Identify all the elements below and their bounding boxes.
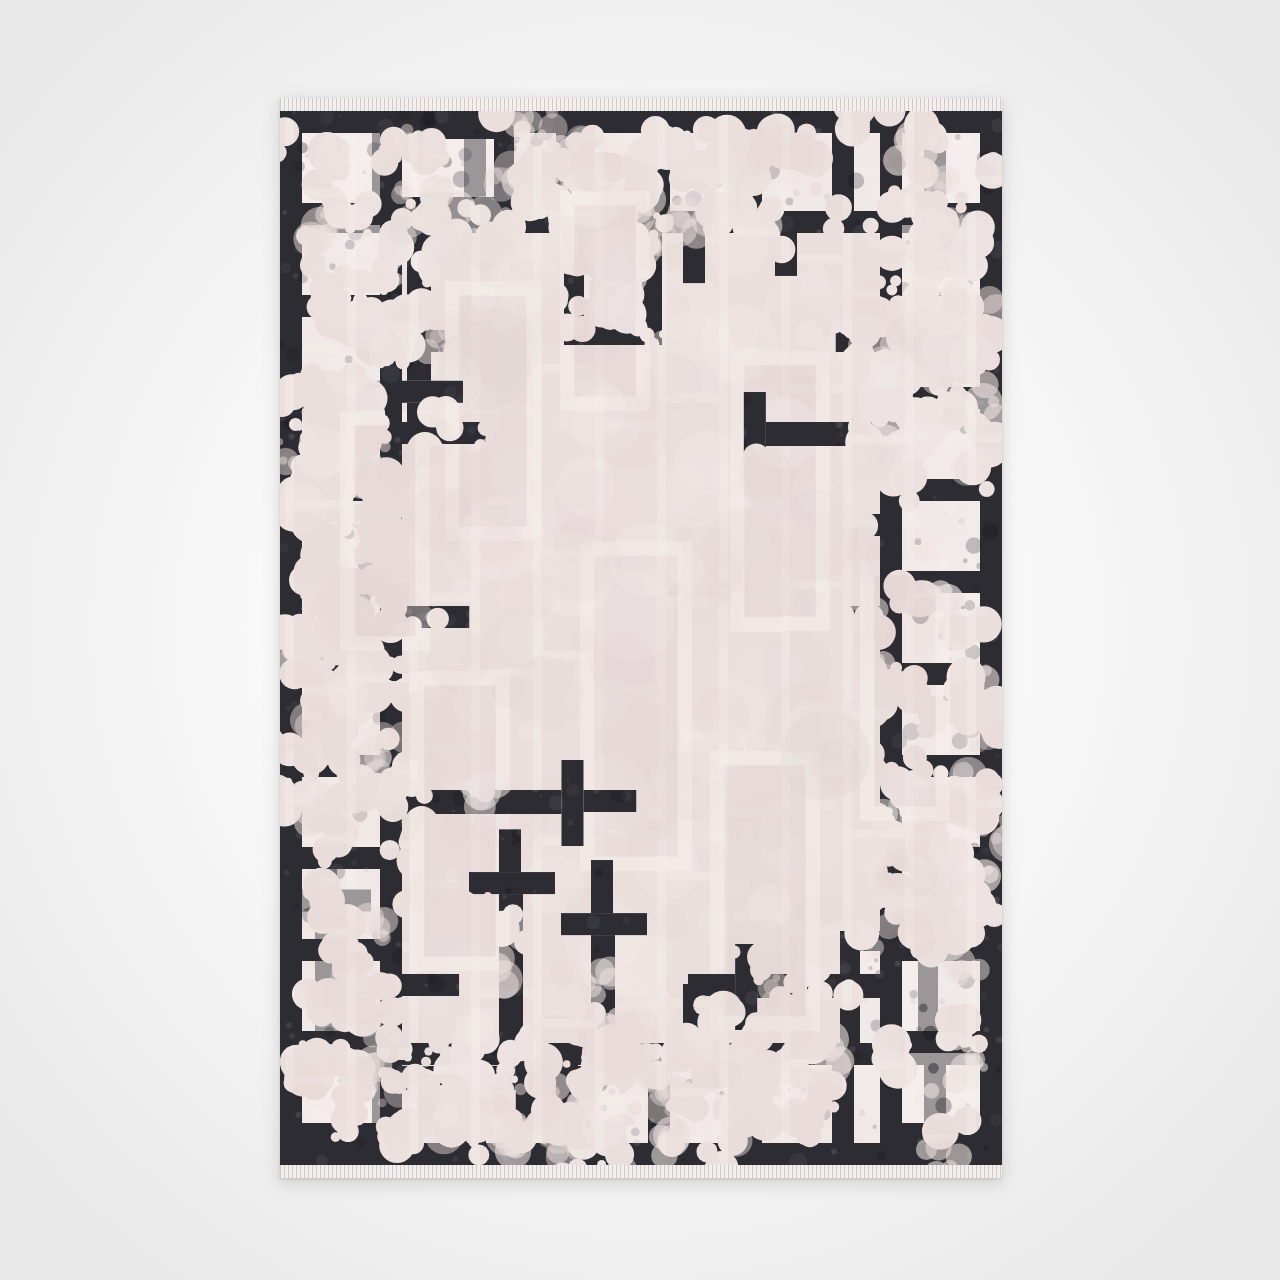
rug-border-pattern-canvas [280,111,1002,1165]
rug-fringe-bottom [280,1165,1002,1178]
studio-background [0,0,1280,1280]
rug-photo [280,98,1002,1178]
rug-pile [280,111,1002,1165]
rug-fringe-top [280,98,1002,111]
